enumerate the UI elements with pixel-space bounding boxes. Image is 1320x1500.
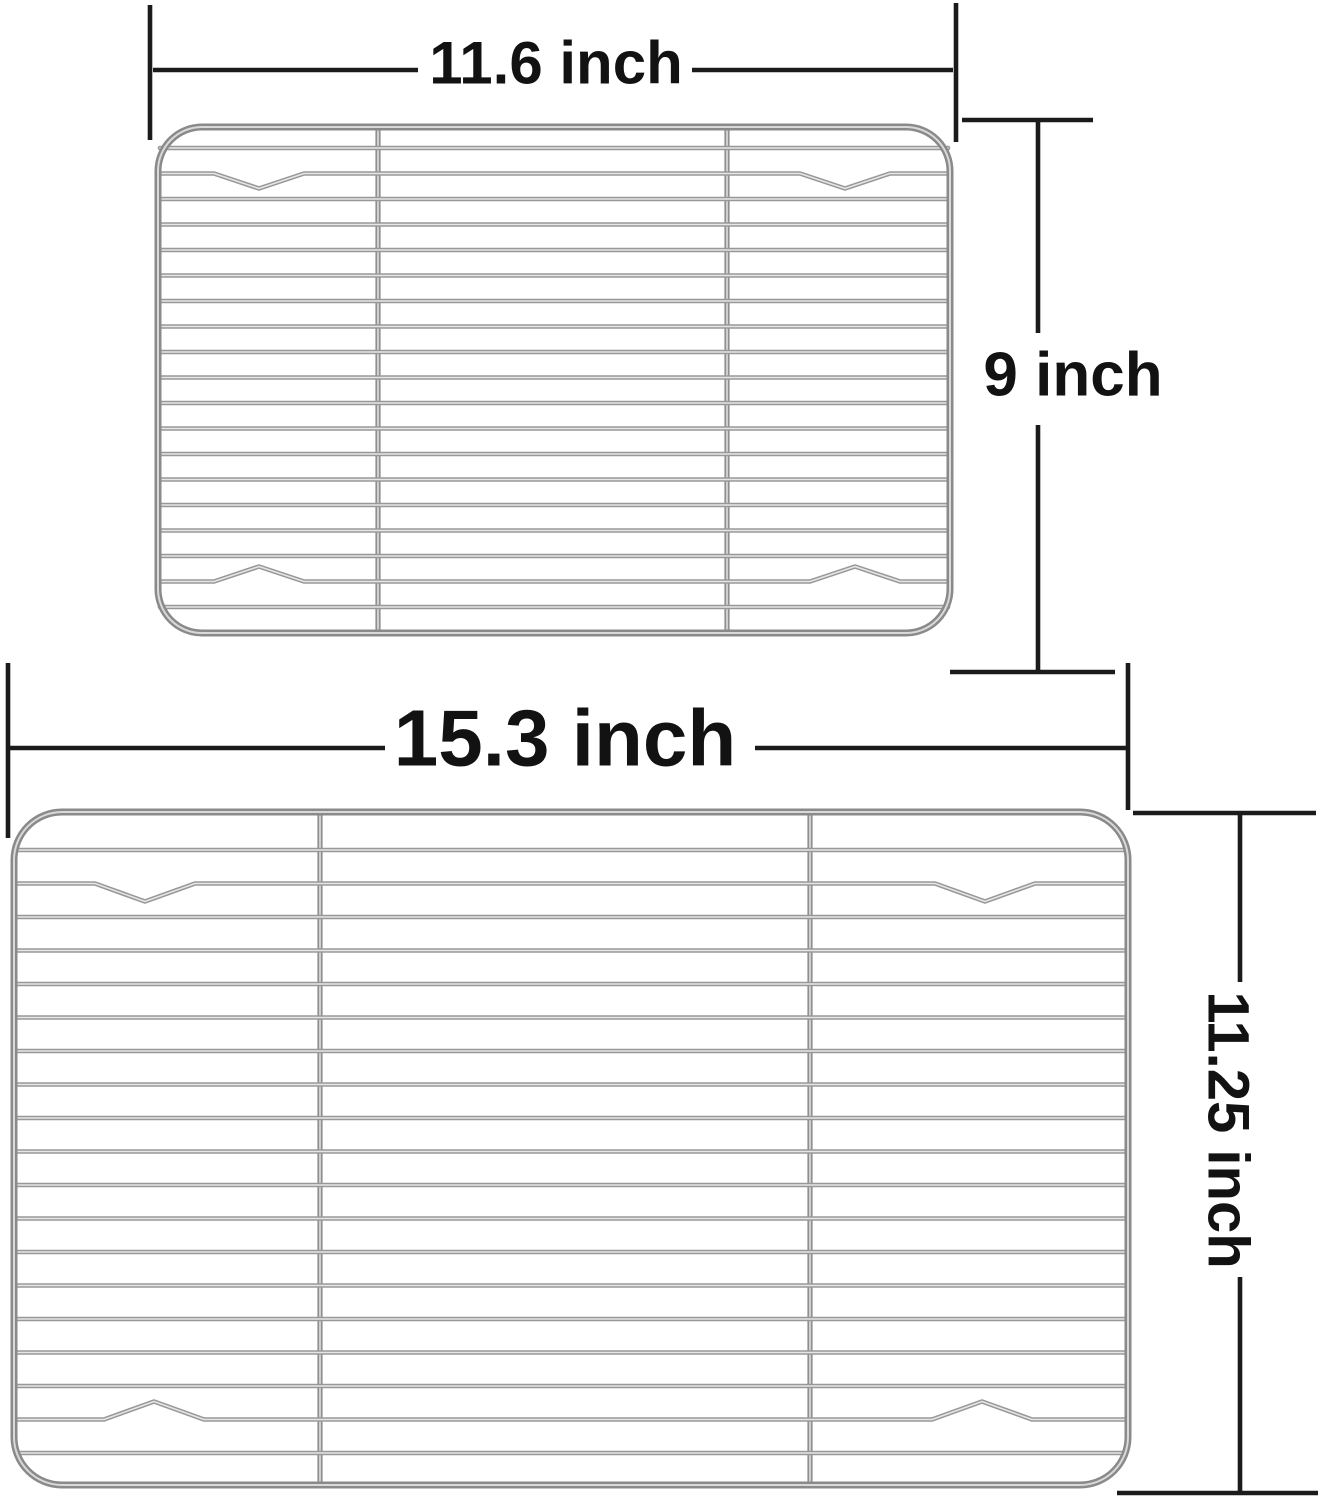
- large-rack-width-label: 15.3 inch: [394, 694, 736, 783]
- small-rack: [158, 127, 950, 633]
- large-rack-height-label: 11.25 inch: [1196, 991, 1261, 1268]
- large-rack: [14, 812, 1128, 1485]
- product-dimension-image: 11.6 inch 9 inch 15.3 inch 11.25 inch: [0, 0, 1320, 1500]
- racks-layer: [14, 127, 1128, 1485]
- small-rack-height-label: 9 inch: [983, 341, 1162, 410]
- racks-scene: 11.6 inch 9 inch 15.3 inch 11.25 inch: [0, 0, 1320, 1500]
- small-rack-width-label: 11.6 inch: [429, 30, 682, 97]
